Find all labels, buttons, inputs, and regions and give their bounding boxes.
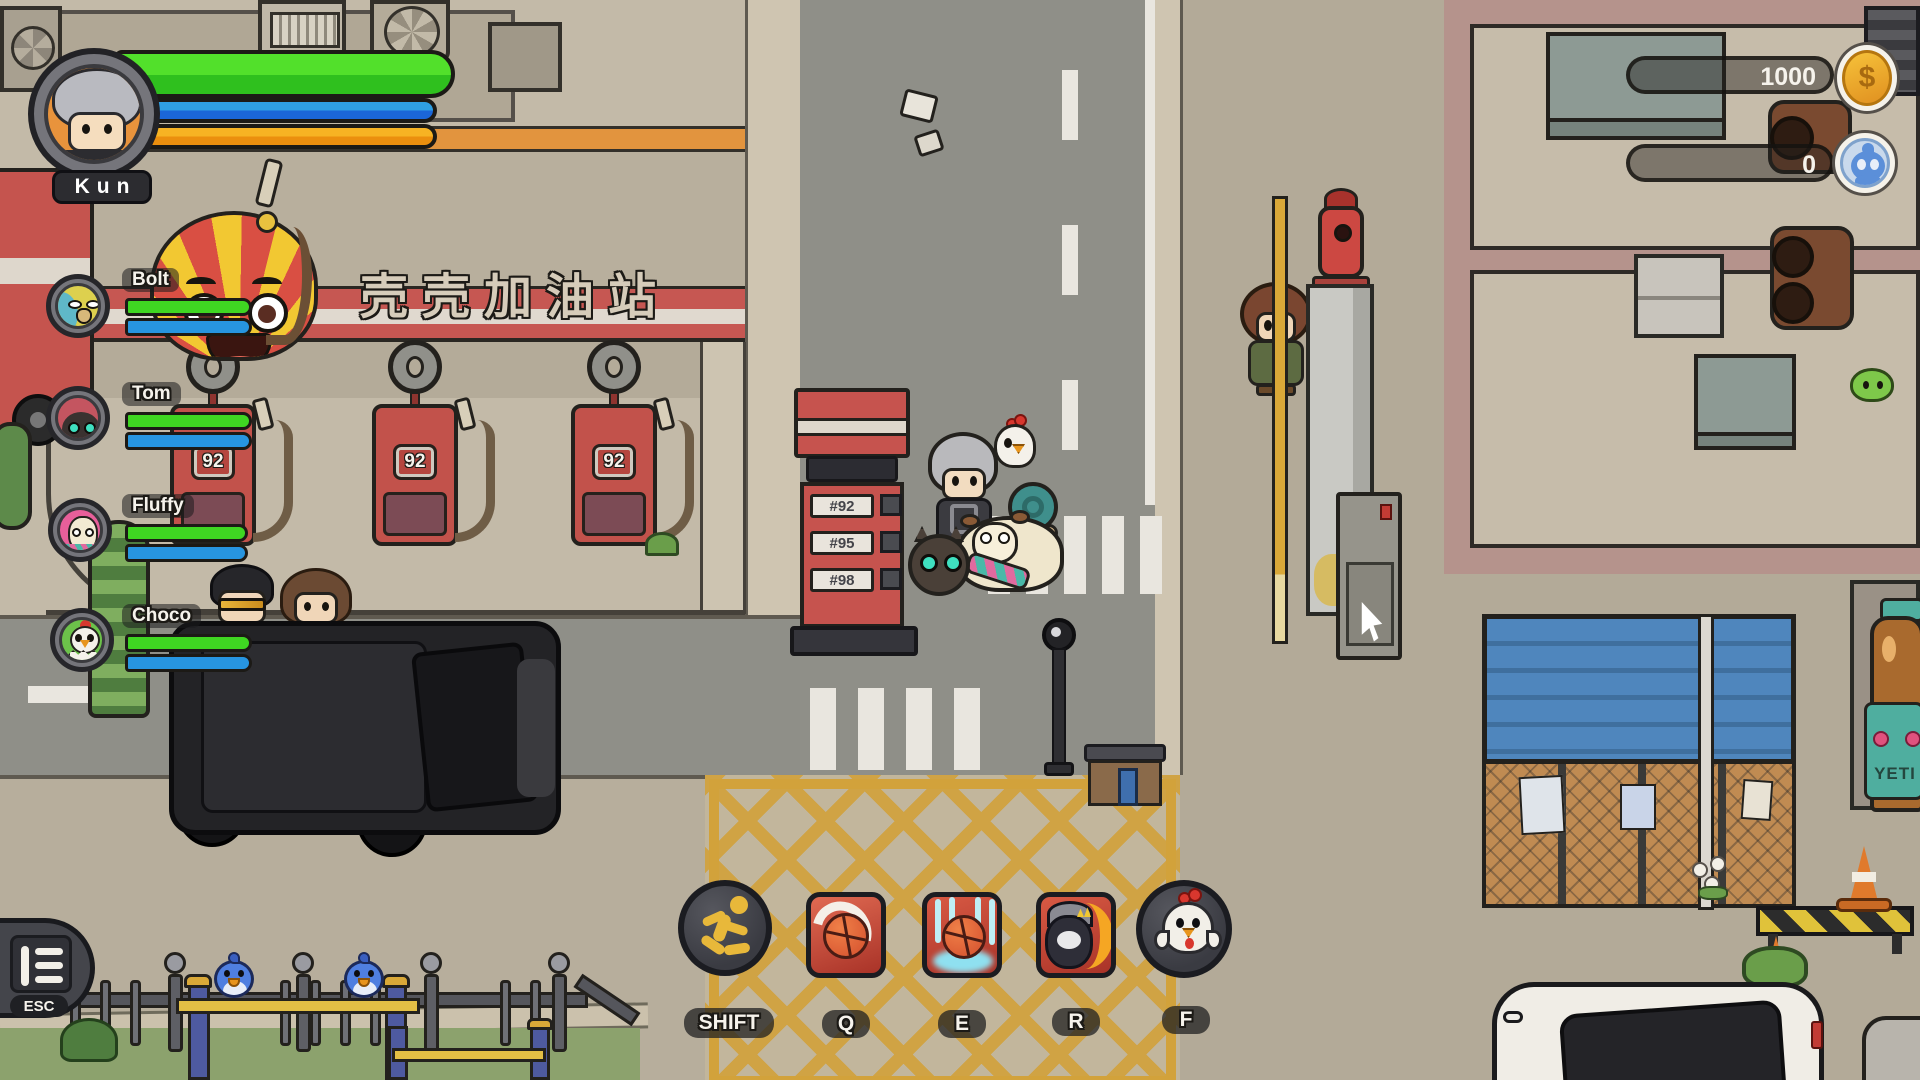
bird-eye [368, 970, 374, 977]
pump-screen [383, 492, 447, 536]
avatar-eye [82, 124, 90, 134]
skill-button-e[interactable] [922, 892, 1002, 978]
party-avatar-tom[interactable] [46, 386, 110, 450]
bird-tuft [358, 952, 370, 964]
pump-screen [582, 492, 646, 536]
party-hp-bar [125, 298, 252, 316]
label-dot [1873, 731, 1889, 747]
gold-coin-icon: $ [1834, 42, 1900, 114]
skill-button-f[interactable] [1136, 880, 1232, 978]
fence-bar [500, 980, 511, 1046]
avatar-body [62, 150, 132, 164]
pump-octane-label: 92 [393, 444, 437, 480]
sheep-ear [1010, 510, 1030, 524]
slime-eye [1863, 381, 1869, 389]
cone-band [1852, 872, 1876, 882]
car-mirror [1503, 1011, 1523, 1023]
choco-eggshell [68, 650, 102, 663]
fuel-pump: 92 [369, 340, 499, 550]
fuel-price-kiosk: #92 #95 #98 [794, 388, 918, 660]
fluffy-eye [85, 528, 94, 537]
party-avatar-bolt[interactable] [46, 274, 110, 338]
party-member-name: Tom [122, 382, 181, 406]
dunk-streak [989, 899, 995, 945]
kiosk-cap [794, 388, 910, 458]
grass-tuft [60, 1018, 118, 1062]
ac-grille [270, 12, 340, 48]
kiosk-button [880, 531, 902, 553]
player-avatar-inner [44, 64, 144, 164]
bird-eye [354, 970, 360, 977]
flower [1692, 862, 1708, 878]
skill-key-label: F [1162, 1006, 1210, 1034]
game-viewport: 壳壳加油站 92 92 92 [0, 0, 1920, 1080]
bottle-billboard: YETI [1850, 580, 1920, 810]
kun-eye [952, 476, 959, 486]
kun-eye [970, 476, 977, 486]
fchicken-comb [1188, 888, 1202, 902]
concrete-slab-base [1694, 432, 1796, 450]
skill-key-text: E [955, 1012, 969, 1036]
kun-face [942, 468, 986, 500]
fuel-pump: 92 [568, 340, 698, 550]
suv-hood-edge [517, 659, 555, 797]
pump-hose [654, 420, 694, 542]
runner-leg [723, 942, 750, 956]
player-avatar[interactable] [28, 48, 160, 180]
choco-avatar-inner [59, 617, 105, 663]
fluffy-scarf [64, 544, 102, 553]
player-name: Kun [68, 175, 137, 199]
pipe-mouth [1772, 236, 1814, 278]
silver-chicken-coin-icon [1832, 130, 1898, 196]
car-windshield [1559, 999, 1790, 1080]
skill-key-text: R [1068, 1010, 1083, 1034]
menu-icon-line [35, 962, 63, 969]
lamp-pole [1052, 648, 1066, 764]
dunk-streak [935, 899, 941, 943]
coin-chicken-body [1855, 175, 1881, 188]
bird-eye [238, 970, 244, 977]
slime-eye [1877, 381, 1883, 389]
sheep-eye [998, 532, 1010, 544]
poster [1519, 775, 1566, 835]
pet-chicken [992, 422, 1038, 474]
sidewalk-strip-right-of-road [1155, 0, 1183, 775]
concrete-slab [1694, 354, 1796, 436]
cone-base [1836, 898, 1892, 912]
monkeybar-cap [382, 974, 410, 988]
coin-chicken-eye [1870, 159, 1879, 170]
cat-eye [920, 554, 938, 572]
ac-duct [1634, 254, 1724, 338]
party-hp-bar [125, 524, 248, 542]
party-mp-bar [125, 432, 252, 450]
utility-box [1336, 492, 1402, 660]
flower [1710, 856, 1726, 872]
poster [1620, 784, 1656, 830]
fence-bar [130, 980, 141, 1046]
npc-eye [322, 602, 329, 611]
mascot-face-patch [1057, 931, 1081, 949]
party-avatar-fluffy[interactable] [48, 498, 112, 562]
yellow-pole [1272, 196, 1288, 644]
skill-button-r[interactable] [1036, 892, 1116, 978]
roof-gray-panel [488, 22, 562, 92]
monkeybar-cap [527, 1018, 553, 1030]
skill-key-text: SHIFT [699, 1011, 760, 1035]
pump-hose [455, 420, 495, 542]
silver-coin-face [1840, 138, 1890, 188]
esc-label-pill: ESC [10, 995, 68, 1017]
crosswalk-stripe [906, 688, 932, 770]
fence-post [552, 974, 567, 1052]
crosswalk-stripe [1140, 516, 1162, 594]
gold-currency-pill[interactable]: 1000 [1626, 56, 1834, 94]
flower-stem-tuft [1698, 886, 1728, 900]
menu-icon-line [35, 948, 63, 955]
bird-tuft [228, 952, 240, 964]
lamp-highlight [1051, 627, 1061, 637]
gray-vehicle-edge [1862, 1016, 1920, 1080]
menu-list-icon [10, 935, 72, 993]
fchicken-eye [1192, 918, 1200, 928]
fence-finial [548, 952, 570, 974]
concrete-slab-base [1546, 118, 1726, 140]
fan-blade-circle [11, 26, 55, 70]
mascot-tongue [217, 356, 263, 361]
tom-eye [68, 422, 80, 434]
party-avatar-choco[interactable] [50, 608, 114, 672]
npc-eye [1264, 320, 1272, 331]
kiosk-cap-stripe [798, 418, 906, 436]
basketball-icon [942, 915, 986, 959]
monkeybar-bar [176, 998, 420, 1014]
grass-tuft [645, 532, 679, 556]
pump-hook-hole [605, 356, 623, 378]
hydrant-port [1334, 224, 1352, 242]
crosswalk-stripe [954, 688, 980, 770]
silver-currency-pill[interactable]: 0 [1626, 144, 1834, 182]
crosswalk-stripe [810, 688, 836, 770]
runner-head [730, 896, 748, 914]
sprint-runner-icon [698, 896, 754, 960]
esc-label: ESC [24, 998, 55, 1015]
fchicken-wattle [1185, 938, 1194, 949]
fence-post [424, 974, 439, 1052]
player-group [908, 418, 1078, 603]
coin-chicken-eye [1857, 159, 1866, 170]
bottle-brand-text: YETI [1867, 761, 1920, 787]
player-mp-bar [114, 98, 437, 123]
street-lamp [1036, 618, 1084, 780]
tom-eye [84, 422, 96, 434]
party-mp-bar [125, 654, 252, 672]
roof-ac-unit [258, 0, 346, 56]
monkeybar-bar [392, 1048, 546, 1062]
fluffy-avatar-inner [57, 507, 103, 553]
mascot-mouth [206, 333, 272, 361]
bolt-avatar-inner [55, 283, 101, 329]
bottle-highlight [1882, 636, 1896, 662]
pump-hose [253, 420, 293, 542]
party-member-name: Fluffy [122, 494, 194, 518]
pipe-mouth [1772, 282, 1814, 324]
fire-hydrant [1316, 188, 1366, 292]
fence-finial [420, 952, 442, 974]
chicken-eye [1004, 438, 1012, 448]
monkeybar-cap [184, 974, 212, 988]
silver-amount: 0 [1802, 151, 1816, 180]
mini-shop [1084, 744, 1168, 810]
white-car [1492, 982, 1824, 1080]
fence-finial [164, 952, 186, 974]
avatar-eye [104, 124, 112, 134]
lamp-base [1044, 762, 1074, 776]
party-member-name: Choco [122, 604, 201, 628]
blue-bird [344, 956, 386, 1000]
fchicken-wing [1154, 930, 1170, 950]
utility-box-sticker [1380, 504, 1392, 520]
party-hp-bar [125, 634, 252, 652]
fluffy-eye [72, 528, 81, 537]
player-hp-bar [114, 50, 455, 98]
mascot-brow [186, 277, 216, 291]
skill-key-text: Q [838, 1012, 854, 1036]
bush-left-edge [0, 422, 32, 530]
duct-seam [1638, 296, 1720, 300]
skill-key-label: SHIFT [684, 1008, 774, 1038]
station-sign-text: 壳壳加油站 [340, 262, 690, 322]
skill-key-label: Q [822, 1010, 870, 1038]
road-edge-line [1145, 0, 1155, 505]
avatar-face [68, 112, 126, 152]
bird-eye [224, 970, 230, 977]
kiosk-button [880, 494, 902, 516]
skill-key-label: E [938, 1010, 986, 1038]
party-mp-bar [125, 318, 252, 336]
crosswalk-stripe [1102, 516, 1124, 594]
bottle-label: YETI [1864, 702, 1920, 800]
bolt-beak [76, 308, 92, 324]
player-sp-bar [114, 124, 437, 149]
shop-door [1118, 768, 1138, 806]
bolt-teal-patch [55, 292, 78, 329]
fuel-price-92: #92 [810, 494, 874, 518]
npc-eye [304, 602, 311, 611]
skill-button-q[interactable] [806, 892, 886, 978]
brown-pipe [1770, 226, 1854, 330]
pump-octane-label: 92 [592, 444, 636, 480]
skill-key-text: F [1180, 1008, 1193, 1032]
skill-button-sprint[interactable] [678, 880, 772, 976]
crosswalk-stripe [858, 688, 884, 770]
blue-storefront [1482, 614, 1796, 764]
cat-eye [944, 554, 962, 572]
station-pillar [700, 342, 746, 614]
utility-box-panel [1346, 562, 1394, 646]
construction-fence [1482, 760, 1796, 908]
party-hp-bar [125, 412, 252, 430]
fuel-price-95: #95 [810, 531, 874, 555]
party-mp-bar [125, 544, 248, 562]
blue-bird [214, 956, 256, 1000]
basketball-icon [823, 913, 869, 959]
chicken-summon-icon [1156, 894, 1220, 966]
gold-amount: 1000 [1760, 63, 1816, 92]
fchicken-eye [1176, 918, 1184, 928]
fchicken-wing [1206, 930, 1222, 950]
sheep-eye [980, 532, 992, 544]
npc-sunglasses [218, 598, 266, 611]
poster [1741, 779, 1774, 821]
pet-black-cat [908, 526, 972, 598]
wheel-hub [30, 412, 46, 428]
car-taillight [1811, 1021, 1823, 1049]
lane-dash [1062, 225, 1078, 295]
runner-arm [723, 921, 749, 937]
party-member-name: Bolt [122, 268, 179, 292]
pump-hook-hole [406, 356, 424, 378]
tom-avatar-inner [55, 395, 101, 441]
kiosk-base [790, 626, 918, 656]
green-slime [1850, 368, 1894, 402]
barrier-leg [1892, 934, 1902, 954]
lane-dash [1062, 70, 1078, 140]
kiosk-slot [806, 456, 898, 482]
label-dot [1905, 731, 1920, 747]
fence-finial [292, 952, 314, 974]
skill-key-label: R [1052, 1008, 1100, 1036]
hydrant-body [1318, 206, 1364, 278]
menu-icon-line [35, 976, 63, 983]
fuel-price-98: #98 [810, 568, 874, 592]
player-nameplate: Kun [52, 170, 152, 204]
lamp-head [1042, 618, 1076, 652]
kiosk-button [880, 568, 902, 590]
flowers [1692, 856, 1740, 900]
traffic-cone [1836, 846, 1892, 914]
menu-icon-bar [21, 946, 29, 986]
gold-coin-face: $ [1842, 50, 1892, 106]
